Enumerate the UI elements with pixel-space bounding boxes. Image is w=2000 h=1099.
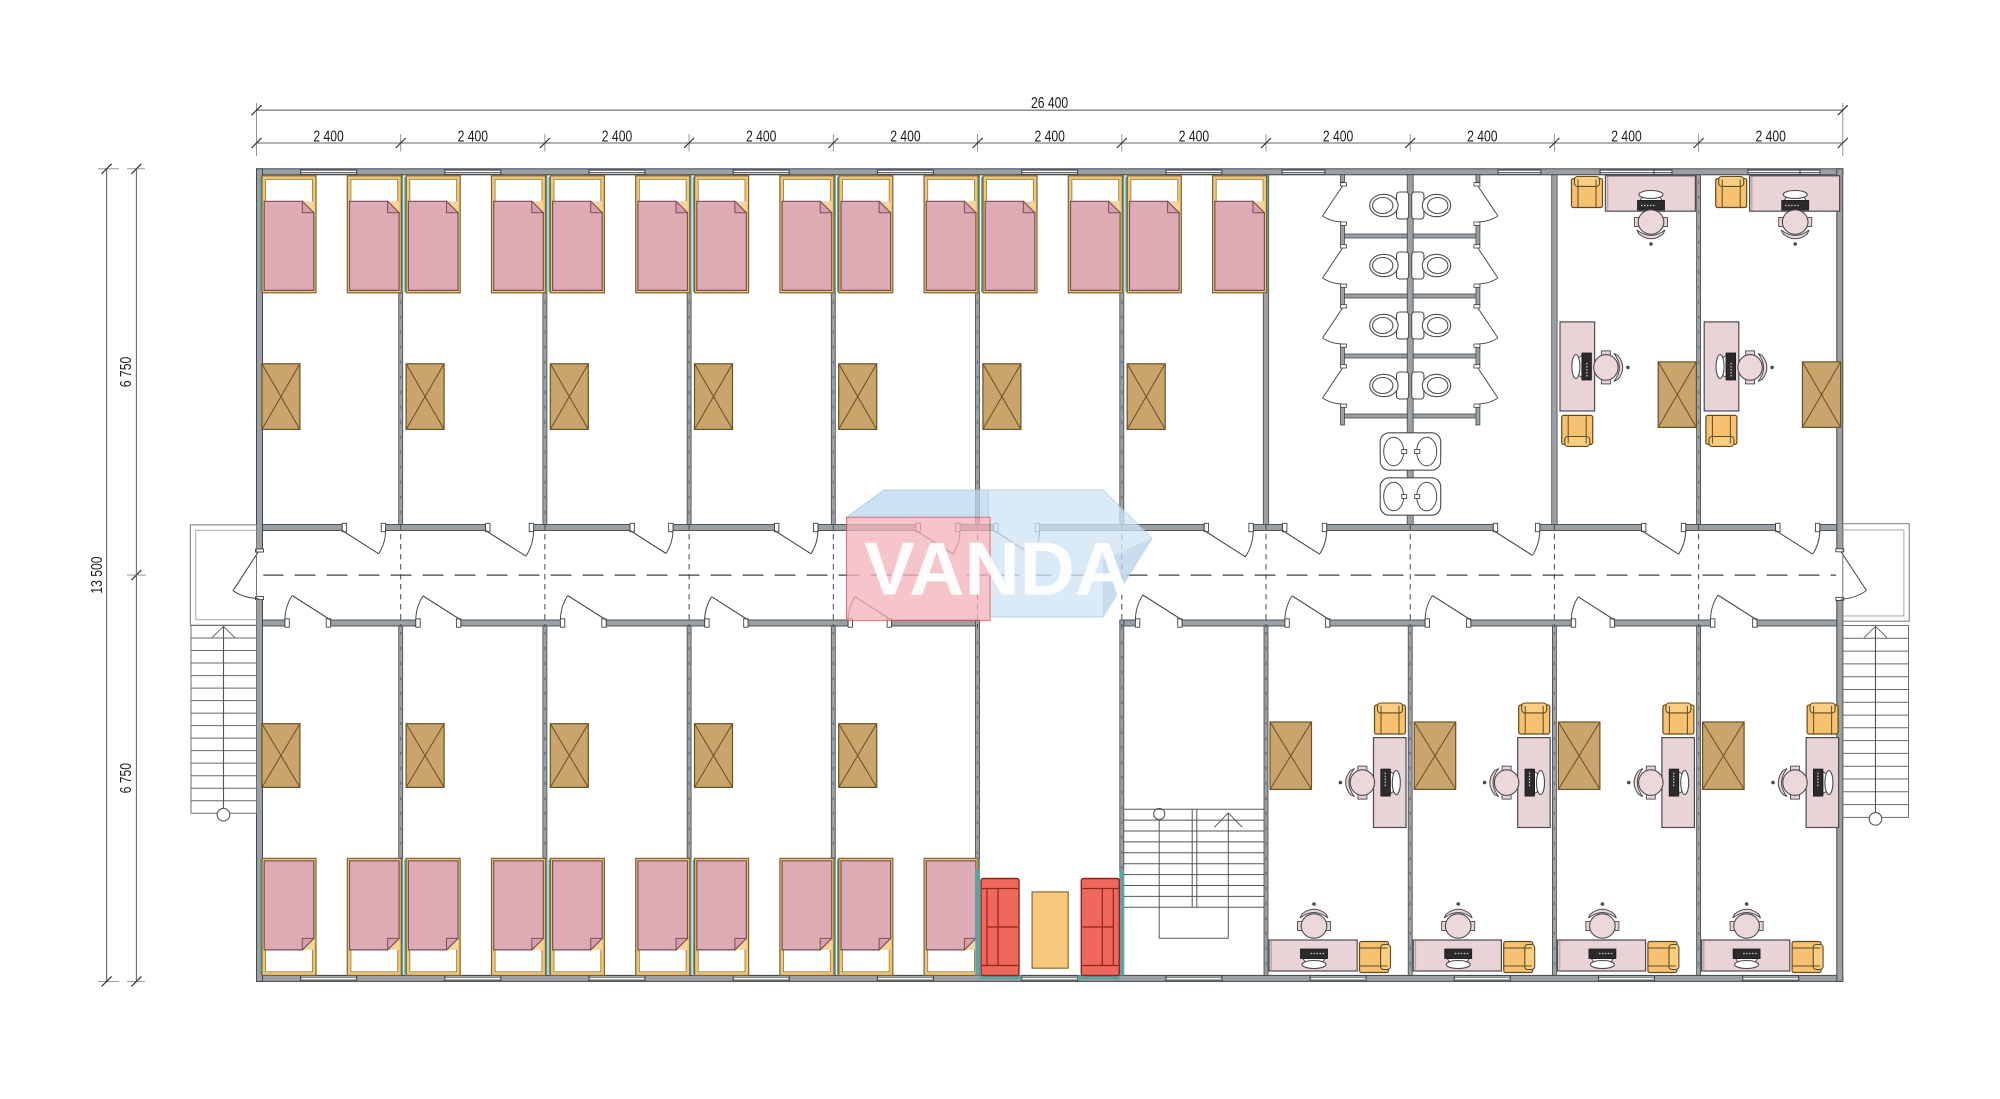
- svg-text:6 750: 6 750: [117, 763, 135, 794]
- svg-text:VANDA: VANDA: [864, 527, 1130, 611]
- svg-text:6 750: 6 750: [117, 357, 135, 388]
- svg-text:2 400: 2 400: [602, 128, 633, 146]
- svg-text:2 400: 2 400: [1611, 128, 1642, 146]
- svg-text:2 400: 2 400: [458, 128, 489, 146]
- svg-text:26 400: 26 400: [1031, 94, 1068, 112]
- svg-text:2 400: 2 400: [1323, 128, 1354, 146]
- svg-text:2 400: 2 400: [1467, 128, 1498, 146]
- svg-text:13 500: 13 500: [88, 556, 106, 593]
- svg-text:2 400: 2 400: [1034, 128, 1065, 146]
- svg-text:2 400: 2 400: [890, 128, 921, 146]
- svg-text:2 400: 2 400: [313, 128, 344, 146]
- svg-text:2 400: 2 400: [746, 128, 777, 146]
- svg-text:2 400: 2 400: [1755, 128, 1786, 146]
- svg-text:2 400: 2 400: [1179, 128, 1210, 146]
